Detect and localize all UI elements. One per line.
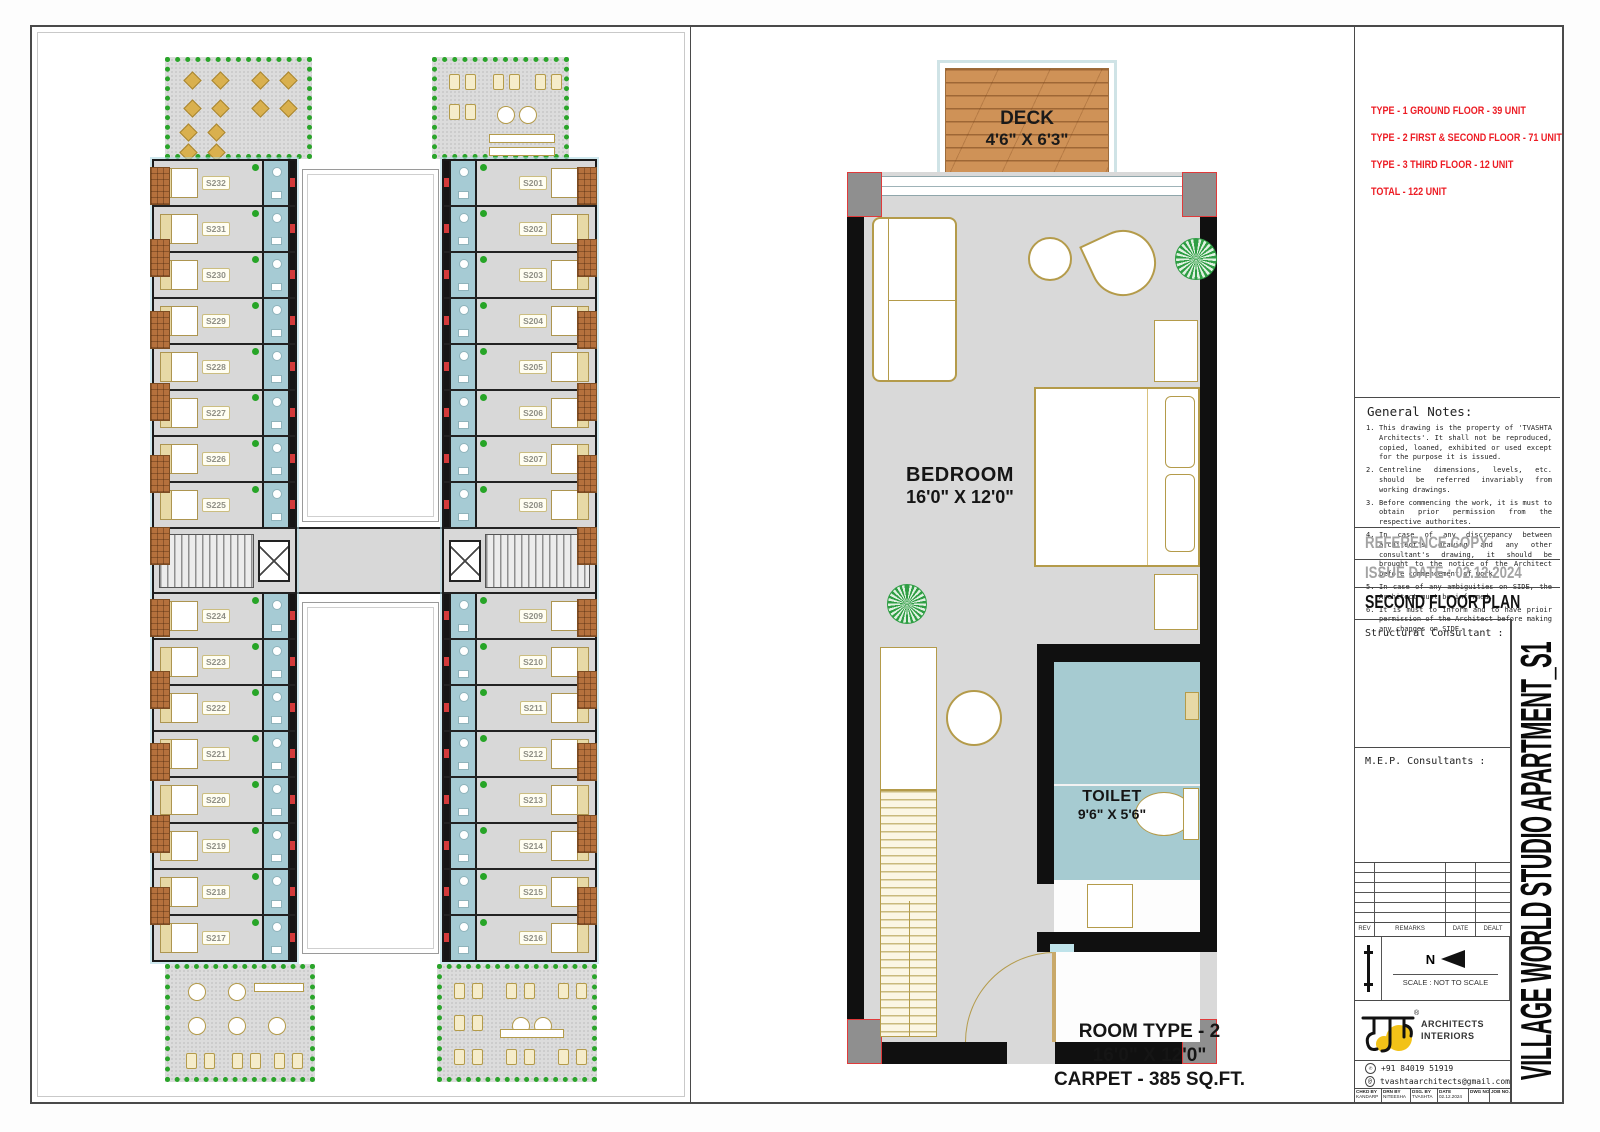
bench-icon (489, 147, 555, 156)
revision-cell (1355, 893, 1375, 903)
unit-label: S214 (519, 839, 547, 853)
unit-toilet (449, 161, 477, 205)
unit-toilet (262, 686, 290, 730)
email-icon: @ (1365, 1076, 1375, 1087)
firm-taglines: ARCHITECTS INTERIORS (1421, 1019, 1484, 1042)
unit-toilet (262, 778, 290, 822)
unit-toilet (262, 870, 290, 914)
unit-row: S202 (444, 207, 595, 253)
unit-label: S226 (202, 452, 230, 466)
unit-row: S213 (444, 778, 595, 824)
corridor-wall (290, 640, 295, 684)
seat-icon (454, 983, 465, 999)
unit-label: S211 (520, 701, 547, 715)
bedroom-dimension: 16'0" X 12'0" (847, 487, 1073, 508)
unit-label: S227 (202, 406, 230, 420)
unit-label: S231 (202, 222, 230, 236)
unit-deck-square (577, 383, 597, 421)
unit-label: S228 (202, 360, 230, 374)
unit-deck-square (150, 743, 170, 781)
unit-plant-dot (252, 164, 259, 171)
seat-icon (576, 983, 587, 999)
unit-plant-dot (480, 873, 487, 880)
unit-toilet (449, 594, 477, 638)
revision-cell (1446, 863, 1476, 873)
terrace-top-left (165, 57, 312, 159)
planter-icon (207, 123, 225, 141)
unit-plant-dot (480, 597, 487, 604)
firm-logo-block: ® ARCHITECTS INTERIORS (1355, 1000, 1511, 1060)
planter-icon (183, 71, 201, 89)
north-cell: N SCALE : NOT TO SCALE (1382, 937, 1510, 1000)
seat-icon (449, 104, 460, 120)
unit-toilet (449, 483, 477, 527)
unit-row: S228 (154, 345, 295, 391)
unit-toilet (449, 686, 477, 730)
unit-room: S227 (154, 391, 262, 435)
unit-plant-dot (252, 394, 259, 401)
title-strip: CHKD BYKANDARPDRN BYNITEESHADSG. BYTVASH… (1355, 1088, 1511, 1102)
unit-row: S220 (154, 778, 295, 824)
seat-icon (524, 1049, 535, 1065)
unit-room: S230 (154, 253, 262, 297)
corridor-wall (290, 778, 295, 822)
unit-row: S224 (154, 594, 295, 640)
planter-icon (251, 99, 269, 117)
left-wing-upper-units: S232S231S230S229S228S227S226S225 (154, 161, 295, 527)
legend-line: TOTAL - 122 UNIT (1371, 186, 1526, 198)
deck-wood-floor: DECK 4'6" X 6'3" (945, 68, 1109, 189)
title-block: TYPE - 1 GROUND FLOOR - 39 UNITTYPE - 2 … (1354, 27, 1560, 1102)
unit-plant-dot (480, 302, 487, 309)
unit-row: S225 (154, 483, 295, 527)
unit-deck-square (150, 599, 170, 637)
revision-cell (1355, 873, 1375, 883)
tagline-architects: ARCHITECTS (1421, 1019, 1484, 1031)
table-icon (188, 1017, 206, 1035)
unit-toilet (449, 778, 477, 822)
corridor-wall (444, 686, 449, 730)
unit-row: S216 (444, 916, 595, 960)
unit-row: S207 (444, 437, 595, 483)
unit-plant-dot (480, 643, 487, 650)
wall-left (847, 172, 864, 1064)
unit-plant-dot (480, 394, 487, 401)
unit-toilet (449, 640, 477, 684)
unit-plant-dot (252, 597, 259, 604)
unit-deck-square (150, 239, 170, 277)
unit-row: S201 (444, 161, 595, 207)
bench-icon (489, 134, 555, 143)
unit-label: S210 (519, 655, 547, 669)
unit-toilet (449, 824, 477, 868)
corridor-wall (444, 253, 449, 297)
unit-plant-dot (252, 643, 259, 650)
revision-cell (1476, 903, 1510, 913)
phone-icon: ✆ (1365, 1063, 1376, 1074)
seat-icon (454, 1015, 465, 1031)
unit-row: S204 (444, 299, 595, 345)
bedside-table (1154, 320, 1198, 382)
unit-plant-dot (252, 735, 259, 742)
staircase (485, 534, 590, 588)
unit-plant-dot (252, 781, 259, 788)
unit-plant-dot (480, 486, 487, 493)
right-wing-upper-units: S201S202S203S204S205S206S207S208 (444, 161, 595, 527)
unit-room: S232 (154, 161, 262, 205)
unit-label: S225 (202, 498, 230, 512)
seat-icon (454, 1049, 465, 1065)
unit-label: S229 (202, 314, 230, 328)
unit-toilet (449, 437, 477, 481)
unit-row: S218 (154, 870, 295, 916)
table-icon (519, 106, 537, 124)
issue-date-text: ISSUE DATE : 02.12.2024 (1365, 563, 1522, 583)
revision-cell (1446, 893, 1476, 903)
tagline-interiors: INTERIORS (1421, 1031, 1484, 1043)
unit-plant-dot (480, 348, 487, 355)
unit-row: S221 (154, 732, 295, 778)
unit-room: S218 (154, 870, 262, 914)
corridor-wall (444, 916, 449, 960)
corridor-wall (290, 437, 295, 481)
general-notes-title: General Notes: (1367, 404, 1560, 419)
planter-icon (179, 123, 197, 141)
unit-toilet (449, 870, 477, 914)
corridor-wall (444, 640, 449, 684)
floor-plan-panel: S232S231S230S229S228S227S226S225 S224S22… (32, 27, 691, 1102)
corridor-wall (444, 207, 449, 251)
unit-toilet (262, 391, 290, 435)
seat-icon (292, 1053, 303, 1069)
unit-plant-dot (480, 164, 487, 171)
unit-legend: TYPE - 1 GROUND FLOOR - 39 UNITTYPE - 2 … (1355, 27, 1560, 397)
wardrobe-counter (880, 647, 937, 790)
revision-cell (1446, 873, 1476, 883)
room-type-caption: ROOM TYPE - 216'0" X 12'0"CARPET - 385 S… (1037, 1020, 1262, 1091)
unit-toilet (262, 437, 290, 481)
unit-bed (160, 490, 198, 520)
planter-icon (251, 71, 269, 89)
strip-cell: JOB NO. (1490, 1089, 1511, 1102)
unit-plant-dot (480, 781, 487, 788)
table-icon (228, 1017, 246, 1035)
corridor-wall (444, 824, 449, 868)
seat-icon (506, 983, 517, 999)
unit-label: S220 (202, 793, 230, 807)
seat-icon (465, 74, 476, 90)
unit-room: S219 (154, 824, 262, 868)
north-letter: N (1426, 952, 1435, 967)
unit-deck-square (150, 527, 170, 565)
courtyard-bottom (302, 602, 439, 954)
unit-label: S202 (519, 222, 547, 236)
revision-rows (1355, 862, 1511, 922)
seat-icon (558, 1049, 569, 1065)
unit-row: S211 (444, 686, 595, 732)
corridor-wall (290, 483, 295, 527)
unit-room: S228 (154, 345, 262, 389)
north-triangle-icon (1441, 950, 1465, 968)
scale-bar (1367, 945, 1370, 992)
revision-cell (1355, 863, 1375, 873)
unit-toilet (449, 391, 477, 435)
legend-line: TYPE - 2 FIRST & SECOND FLOOR - 71 UNIT (1371, 132, 1526, 144)
table-icon (497, 106, 515, 124)
pillow (1165, 396, 1195, 468)
corridor-wall (290, 916, 295, 960)
terrace-top-right (432, 57, 569, 159)
bench-icon (500, 1029, 564, 1038)
unit-room: S224 (154, 594, 262, 638)
corridor-wall (444, 870, 449, 914)
sofa (872, 217, 957, 382)
strip-cell: DRN BYNITEESHA (1382, 1089, 1411, 1102)
unit-label: S203 (519, 268, 547, 282)
revision-header: REVREMARKSDATEDEALT (1355, 922, 1511, 936)
seat-icon (509, 74, 520, 90)
unit-room: S231 (154, 207, 262, 251)
unit-plant-dot (480, 440, 487, 447)
seat-icon (472, 983, 483, 999)
strip-value: KANDARP (1356, 1094, 1381, 1099)
unit-plant-dot (252, 210, 259, 217)
planter-icon (211, 99, 229, 117)
unit-label: S218 (202, 885, 230, 899)
project-title: VILLAGE WORLD STUDIO APARTMENT_S1 (1512, 422, 1562, 1132)
unit-label: S212 (519, 747, 547, 761)
unit-plant-dot (480, 689, 487, 696)
unit-toilet (449, 299, 477, 343)
legend-line: TYPE - 1 GROUND FLOOR - 39 UNIT (1371, 105, 1526, 117)
unit-bed (160, 785, 198, 815)
unit-toilet (449, 345, 477, 389)
revision-cell (1355, 903, 1375, 913)
table-icon (268, 1017, 286, 1035)
unit-row: S232 (154, 161, 295, 207)
shower-glass-partition (1054, 784, 1200, 786)
revision-cell (1375, 883, 1446, 893)
unit-room: S226 (154, 437, 262, 481)
seat-icon (535, 74, 546, 90)
unit-toilet (262, 253, 290, 297)
unit-plant-dot (480, 210, 487, 217)
terrace-bottom-left (165, 964, 315, 1082)
pillow (1165, 474, 1195, 552)
planter-icon (279, 99, 297, 117)
seat-icon (465, 104, 476, 120)
toilet-floor (1054, 662, 1200, 880)
revision-cell (1375, 893, 1446, 903)
plan-name-text: SECOND FLOOR PLAN (1365, 592, 1520, 613)
corridor-wall (290, 161, 295, 205)
graphic-scale-cell (1355, 937, 1382, 1000)
unit-plant-dot (252, 486, 259, 493)
corridor-wall (444, 161, 449, 205)
unit-deck-square (150, 383, 170, 421)
column-bottom-left (847, 1019, 882, 1064)
strip-cell: DATE02.12.2024 (1438, 1089, 1469, 1102)
unit-bed (160, 923, 198, 953)
planter-icon (183, 99, 201, 117)
unit-row: S209 (444, 594, 595, 640)
seat-icon (524, 983, 535, 999)
unit-label: S232 (202, 176, 230, 190)
unit-plant-dot (252, 440, 259, 447)
strip-label: JOB NO. (1491, 1089, 1511, 1094)
scale-label: SCALE : NOT TO SCALE (1393, 974, 1498, 987)
unit-plant-dot (252, 689, 259, 696)
left-wing-lower-units: S224S223S222S221S220S219S218S217 (154, 594, 295, 960)
unit-label: S208 (519, 498, 547, 512)
unit-row: S205 (444, 345, 595, 391)
staircase (159, 534, 254, 588)
shower-fixture (1185, 692, 1199, 720)
revision-header-cell: DEALT (1476, 923, 1510, 936)
bedside-table (1154, 574, 1198, 630)
corridor-crossbar (297, 527, 442, 594)
unit-row: S217 (154, 916, 295, 960)
unit-deck-square (577, 743, 597, 781)
unit-row: S222 (154, 686, 295, 732)
plant (1175, 238, 1217, 280)
revision-cell (1446, 903, 1476, 913)
unit-room: S217 (154, 916, 262, 960)
terrace-bottom-right (437, 964, 597, 1082)
unit-deck-square (150, 455, 170, 493)
unit-label: S219 (202, 839, 230, 853)
unit-deck-square (577, 527, 597, 565)
firm-contacts: ✆ +91 84019 51919 @ tvashtaarchitects@gm… (1355, 1060, 1511, 1088)
unit-room: S222 (154, 686, 262, 730)
seat-icon (204, 1053, 215, 1069)
unit-deck-square (150, 815, 170, 853)
unit-room: S221 (154, 732, 262, 776)
unit-toilet (262, 640, 290, 684)
toilet-label: TOILET 9'6" X 5'6" (1042, 788, 1182, 822)
unit-row: S230 (154, 253, 295, 299)
mep-consultant-box: M.E.P. Consultants : (1355, 747, 1511, 862)
unit-toilet (262, 483, 290, 527)
lift (258, 540, 290, 582)
unit-plant-dot (252, 302, 259, 309)
right-wing-stair-core (444, 527, 595, 594)
unit-deck-square (150, 671, 170, 709)
bedroom-label: BEDROOM 16'0" X 12'0" (847, 464, 1073, 508)
email-line: @ tvashtaarchitects@gmail.com (1365, 1076, 1510, 1087)
legend-line: TYPE - 3 THIRD FLOOR - 12 UNIT (1371, 159, 1526, 171)
seat-icon (493, 74, 504, 90)
seat-icon (576, 1049, 587, 1065)
corridor-wall (290, 299, 295, 343)
unit-toilet (449, 253, 477, 297)
unit-plant-dot (252, 256, 259, 263)
unit-plant-dot (252, 348, 259, 355)
unit-toilet (262, 732, 290, 776)
corridor-wall (290, 391, 295, 435)
unit-row: S219 (154, 824, 295, 870)
unit-row: S212 (444, 732, 595, 778)
unit-plant-dot (480, 256, 487, 263)
unit-label: S221 (202, 747, 230, 761)
strip-cell: CHKD BYKANDARP (1355, 1089, 1382, 1102)
seat-icon (449, 74, 460, 90)
email-address: tvashtaarchitects@gmail.com (1380, 1077, 1510, 1086)
unit-deck-square (577, 671, 597, 709)
north-arrow: N (1426, 950, 1465, 968)
drawing-sheet: S232S231S230S229S228S227S226S225 S224S22… (30, 25, 1564, 1104)
louvered-wardrobe (880, 790, 937, 1037)
corridor-wall (444, 778, 449, 822)
unit-bed (551, 352, 589, 382)
bench-icon (254, 983, 304, 992)
door-threshold (1050, 944, 1074, 952)
unit-toilet (449, 916, 477, 960)
corridor-wall (290, 207, 295, 251)
unit-row: S226 (154, 437, 295, 483)
unit-plant-dot (252, 873, 259, 880)
planter-icon (211, 71, 229, 89)
seat-icon (472, 1015, 483, 1031)
strip-value: 02.12.2024 (1439, 1094, 1468, 1099)
unit-label: S205 (519, 360, 547, 374)
unit-row: S208 (444, 483, 595, 527)
unit-deck-square (577, 815, 597, 853)
unit-room: S225 (154, 483, 262, 527)
right-wing-lower-units: S209S210S211S212S213S214S215S216 (444, 594, 595, 960)
corridor-wall (444, 437, 449, 481)
unit-row: S203 (444, 253, 595, 299)
unit-bed (551, 490, 589, 520)
unit-row: S227 (154, 391, 295, 437)
strip-label: DWG NO (1470, 1089, 1489, 1094)
toilet-dimension: 9'6" X 5'6" (1042, 806, 1182, 822)
unit-row: S223 (154, 640, 295, 686)
seat-icon (506, 1049, 517, 1065)
corridor-wall (444, 483, 449, 527)
seat-icon (232, 1053, 243, 1069)
corridor-wall (290, 824, 295, 868)
unit-row: S214 (444, 824, 595, 870)
unit-label: S216 (519, 931, 547, 945)
mep-consultant-label: M.E.P. Consultants : (1355, 748, 1510, 767)
unit-bed (551, 923, 589, 953)
corridor-wall (290, 345, 295, 389)
deck-label: DECK (1000, 108, 1054, 130)
unit-label: S217 (202, 931, 230, 945)
structural-consultant-box: Structural Consultant : (1355, 619, 1511, 747)
unit-toilet (262, 161, 290, 205)
seat-icon (186, 1053, 197, 1069)
unit-deck-square (577, 887, 597, 925)
corridor-wall (444, 299, 449, 343)
lounge-chair (1079, 219, 1167, 307)
tvashta-logo: ® (1359, 1005, 1421, 1057)
unit-plant-dot (480, 827, 487, 834)
lift (449, 540, 481, 582)
unit-label: S224 (202, 609, 230, 623)
strip-value: TVASHTA (1412, 1094, 1437, 1099)
unit-toilet (449, 207, 477, 251)
unit-deck-square (577, 239, 597, 277)
unit-deck-square (150, 167, 170, 205)
unit-label: S201 (519, 176, 547, 190)
project-title-strip: VILLAGE WORLD STUDIO APARTMENT_S1 (1511, 619, 1561, 1102)
revision-header-cell: DATE (1446, 923, 1476, 936)
unit-room: S220 (154, 778, 262, 822)
caption-line: ROOM TYPE - 2 (1037, 1020, 1262, 1044)
reference-copy-text: REFERENCE COPY (1365, 533, 1488, 553)
